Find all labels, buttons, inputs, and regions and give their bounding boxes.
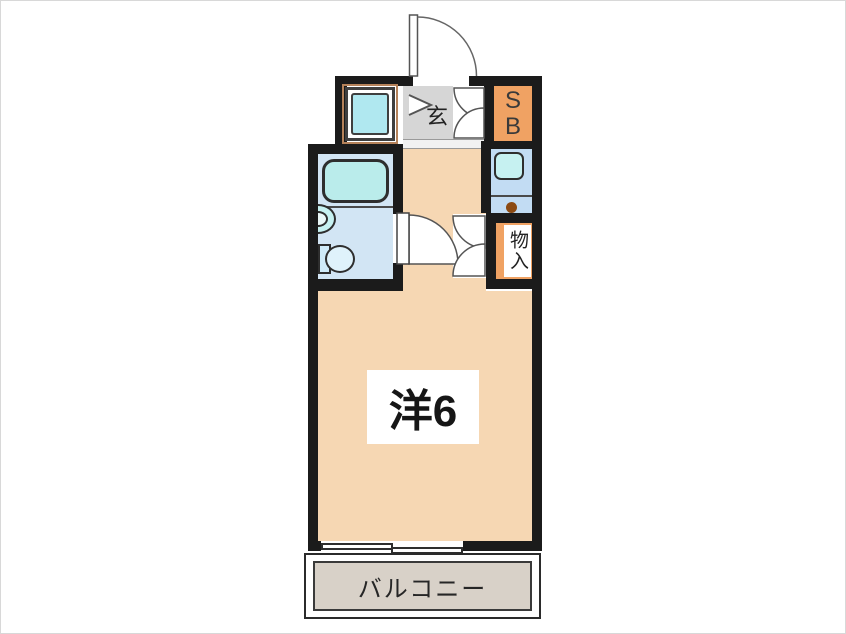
door-swing-layer	[1, 1, 846, 634]
entrance-label: 玄	[421, 102, 453, 128]
storage-door-upper	[453, 216, 485, 248]
shoebox-door-lower	[454, 108, 484, 138]
storage-door-lower	[453, 244, 485, 276]
entrance-door-swing	[418, 17, 477, 76]
main-room-label: 洋6	[389, 375, 457, 439]
shoebox-label: SB	[494, 87, 532, 141]
main-room-label-box: 洋6	[367, 370, 479, 444]
bathroom-door-swing	[409, 215, 458, 264]
floor-plan: バルコニー 玄 SB 物入 洋6	[0, 0, 846, 634]
storage-label: 物入	[504, 230, 531, 272]
bathroom-door-leaf	[397, 213, 409, 264]
storage-label-box: 物入	[504, 225, 531, 277]
entrance-door-leaf	[410, 15, 418, 76]
